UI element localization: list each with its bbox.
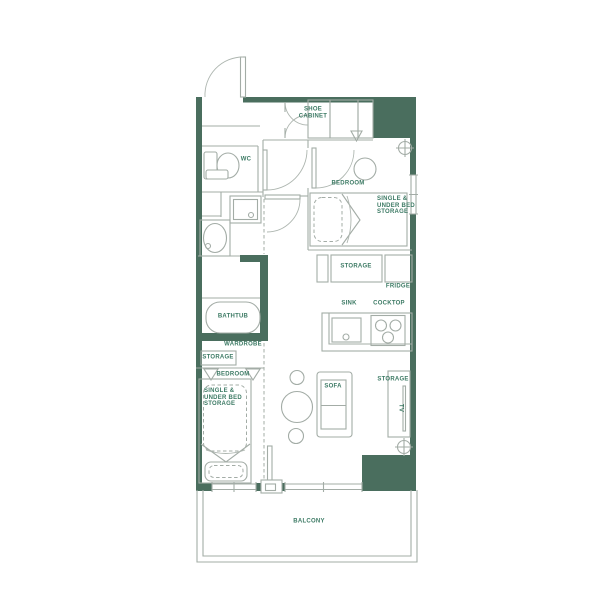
- label-bedroom-top: BEDROOM: [331, 181, 364, 188]
- label-wardrobe: WARDROBE: [224, 342, 262, 349]
- label-sink: SINK: [341, 301, 356, 308]
- stool: [354, 158, 376, 180]
- label-storage-wardrobe: STORAGE: [202, 355, 233, 362]
- label-storage-tv: STORAGE: [377, 377, 408, 384]
- dining-table: [282, 371, 313, 444]
- washing-machine: [230, 196, 261, 223]
- entrance-door: [205, 57, 246, 97]
- window-bottom-right: [285, 482, 362, 492]
- label-bedroom-bottom: BEDROOM: [216, 372, 249, 379]
- label-storage-kitchen: STORAGE: [340, 264, 371, 271]
- wc-door: [263, 150, 307, 190]
- window-bottom-left: [212, 482, 256, 492]
- cooktop: [371, 316, 405, 346]
- bathroom-door: [265, 195, 300, 232]
- label-tv: TV: [397, 404, 404, 412]
- label-fridge: FRIDGE: [386, 284, 410, 291]
- floorplan-drawing: [0, 0, 600, 600]
- kitchen-sink: [332, 318, 361, 342]
- label-shoe-cabinet: SHOE CABINET: [299, 106, 327, 119]
- label-sofa: SOFA: [324, 384, 341, 391]
- entry-closet: [330, 100, 373, 141]
- label-wc: WC: [241, 157, 252, 164]
- toilet: [204, 152, 239, 179]
- sofa: [317, 372, 352, 437]
- washbasin: [200, 220, 230, 256]
- label-single-under-bed-top: SINGLE & UNDER BED STORAGE: [377, 196, 415, 216]
- label-balcony: BALCONY: [293, 519, 324, 526]
- balcony-rail: [197, 490, 417, 562]
- label-single-under-bed-bottom: SINGLE & UNDER BED STORAGE: [204, 388, 242, 408]
- label-cocktop: COCKTOP: [373, 301, 405, 308]
- floorplan-page: SHOE CABINET WC BEDROOM SINGLE & UNDER B…: [0, 0, 600, 600]
- label-bathtub: BATHTUB: [218, 314, 248, 321]
